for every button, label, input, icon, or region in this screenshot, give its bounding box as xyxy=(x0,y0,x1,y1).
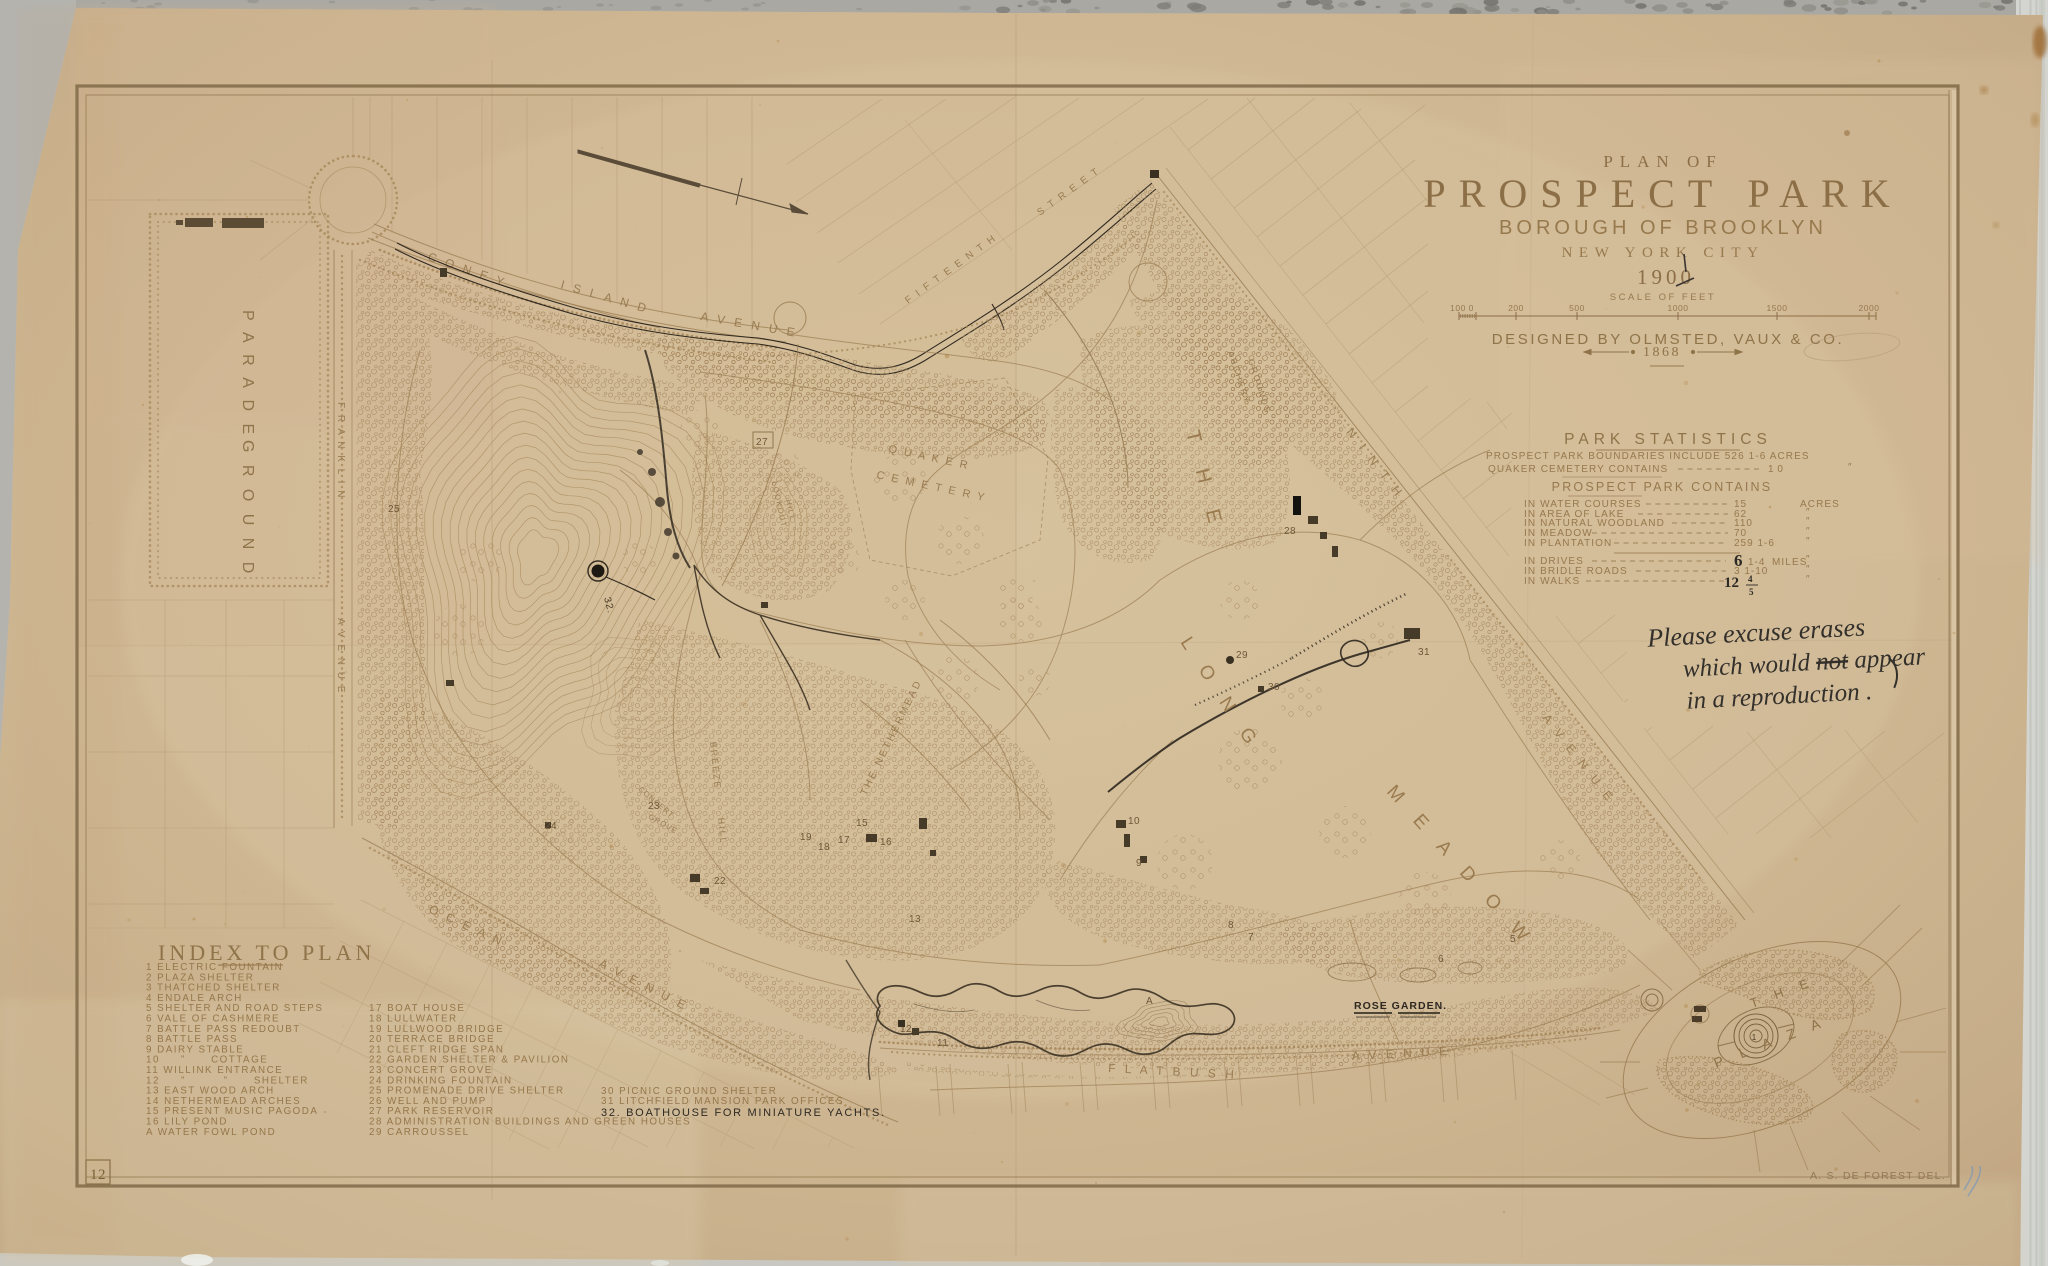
svg-text:MILES: MILES xyxy=(1772,557,1808,568)
svg-text:PLAN OF: PLAN OF xyxy=(1603,152,1722,171)
svg-text:6: 6 xyxy=(1438,954,1444,965)
svg-text:″: ″ xyxy=(1806,574,1810,585)
svg-text:PROSPECT PARK CONTAINS: PROSPECT PARK CONTAINS xyxy=(1552,480,1773,494)
svg-text:1500: 1500 xyxy=(1767,303,1788,313)
svg-text:1-4: 1-4 xyxy=(1748,557,1765,568)
svg-text:5: 5 xyxy=(1749,587,1754,597)
svg-text:G R O U N D: G R O U N D xyxy=(239,440,256,577)
svg-text:12: 12 xyxy=(1724,575,1739,591)
svg-text:500: 500 xyxy=(1569,303,1585,313)
svg-text:200: 200 xyxy=(1508,303,1524,313)
svg-text:IN WALKS: IN WALKS xyxy=(1524,576,1580,587)
svg-text:F R A N K L I N: F R A N K L I N xyxy=(335,402,346,499)
svg-text:22: 22 xyxy=(714,876,726,887)
svg-text:15: 15 xyxy=(856,818,868,829)
svg-text:259 1-6: 259 1-6 xyxy=(1734,538,1775,549)
svg-text:16: 16 xyxy=(880,837,892,848)
svg-text:A V E N U E: A V E N U E xyxy=(335,618,346,694)
svg-text:8: 8 xyxy=(1228,920,1234,931)
svg-text:NEW YORK CITY: NEW YORK CITY xyxy=(1562,245,1765,261)
svg-text:″: ″ xyxy=(1806,536,1810,547)
svg-text:A. S. DE FOREST DEL.: A. S. DE FOREST DEL. xyxy=(1810,1170,1946,1182)
svg-text:BOROUGH OF BROOKLYN: BOROUGH OF BROOKLYN xyxy=(1499,217,1827,239)
svg-text:QUAKER CEMETERY CONTAINS: QUAKER CEMETERY CONTAINS xyxy=(1488,464,1668,475)
svg-text:1 0: 1 0 xyxy=(1768,464,1783,475)
svg-text:18: 18 xyxy=(818,842,830,853)
svg-text:″: ″ xyxy=(1848,462,1852,473)
svg-text:31 LITCHFIELD MANSION PARK: 31 LITCHFIELD MANSION PARK OFFICES xyxy=(601,1096,844,1107)
svg-text:24: 24 xyxy=(545,821,557,832)
svg-text:29: 29 xyxy=(1236,650,1248,661)
svg-text:A: A xyxy=(1146,996,1153,1007)
svg-text:28: 28 xyxy=(1284,526,1296,537)
svg-text:IN PLANTATION: IN PLANTATION xyxy=(1524,538,1612,549)
svg-text:1868: 1868 xyxy=(1643,345,1681,360)
svg-text:2000: 2000 xyxy=(1859,303,1880,313)
svg-text:4: 4 xyxy=(1748,574,1753,584)
svg-text:17: 17 xyxy=(838,835,850,846)
svg-text:19: 19 xyxy=(800,832,812,843)
svg-text:P A R A D E: P A R A D E xyxy=(239,310,256,438)
svg-text:10: 10 xyxy=(1128,816,1140,827)
svg-text:ROSE GARDEN.: ROSE GARDEN. xyxy=(1354,1000,1447,1012)
svg-text:30: 30 xyxy=(1268,682,1280,693)
svg-text:100 0: 100 0 xyxy=(1450,303,1474,313)
svg-text:7: 7 xyxy=(1248,932,1254,943)
svg-text:PROSPECT PARK BOUNDARIES IN: PROSPECT PARK BOUNDARIES INCLUDE 526 1-6… xyxy=(1486,451,1810,462)
svg-text:12: 12 xyxy=(90,1167,106,1183)
svg-text:25: 25 xyxy=(388,504,400,515)
svg-text:SCALE OF FEET: SCALE OF FEET xyxy=(1610,292,1716,303)
svg-text:A WATER FOWL POND: A WATER FOWL POND xyxy=(146,1127,276,1138)
svg-text:32. BOATHOUSE FOR MINIATURE: 32. BOATHOUSE FOR MINIATURE YACHTS. xyxy=(601,1107,886,1119)
svg-text:31: 31 xyxy=(1418,647,1430,658)
svg-text:29 CARROUSSEL: 29 CARROUSSEL xyxy=(369,1127,470,1138)
svg-text:6: 6 xyxy=(1734,551,1743,570)
svg-text:9: 9 xyxy=(1136,858,1142,869)
svg-text:PROSPECT PARK: PROSPECT PARK xyxy=(1423,171,1902,216)
svg-text:1000: 1000 xyxy=(1668,303,1689,313)
svg-text:27: 27 xyxy=(756,437,768,448)
svg-text:13: 13 xyxy=(909,914,921,925)
svg-text:PARK STATISTICS: PARK STATISTICS xyxy=(1564,431,1772,448)
svg-text:11: 11 xyxy=(937,1038,948,1049)
